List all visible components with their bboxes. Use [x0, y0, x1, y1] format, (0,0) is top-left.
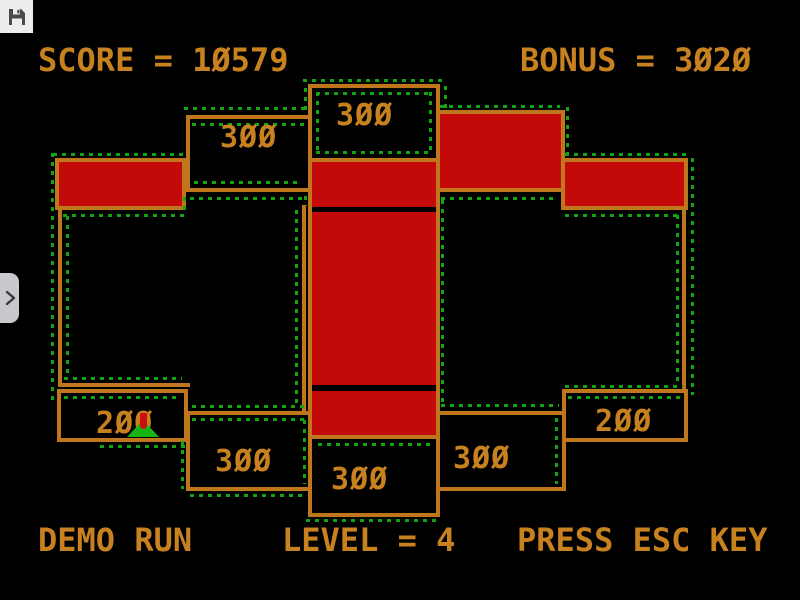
floppy-icon: [7, 7, 27, 27]
trace-dotted-line: [444, 86, 447, 112]
game-screen: SCORE = 1Ø579 BONUS = 3Ø2Ø DEMO RUN LEVE…: [0, 0, 800, 600]
level-text: LEVEL = 4: [282, 524, 455, 556]
trace-dotted-line: [183, 197, 186, 215]
trace-dotted-line: [441, 200, 444, 406]
claimed-block-left-bar: [55, 158, 186, 210]
trace-dotted-line: [63, 214, 185, 217]
region-label-top-left: 3ØØ: [220, 123, 277, 153]
trace-dotted-line: [64, 396, 180, 399]
trace-dotted-line: [66, 216, 69, 378]
trace-dotted-line: [184, 107, 310, 110]
trace-dotted-line: [192, 405, 304, 408]
claimed-block-center-3: [312, 391, 436, 435]
trace-dotted-line: [306, 519, 440, 522]
trace-dotted-line: [568, 396, 682, 399]
bonus-text: BONUS = 3Ø2Ø: [520, 44, 751, 76]
region-label-bottom-center: 3ØØ: [331, 465, 388, 495]
trace-dotted-line: [100, 445, 190, 448]
save-button[interactable]: [0, 0, 33, 33]
claimed-block-right-1: [436, 110, 565, 192]
region-border: [302, 205, 306, 415]
region-border: [58, 210, 62, 387]
trace-dotted-line: [565, 385, 683, 388]
demo-run-text: DEMO RUN: [38, 524, 192, 556]
trace-dotted-line: [192, 418, 304, 421]
sidebar-toggle-button[interactable]: [0, 273, 19, 323]
region-label-top-center: 3ØØ: [336, 101, 393, 131]
claimed-block-right-2: [561, 158, 688, 210]
trace-dotted-line: [181, 441, 184, 489]
trace-dotted-line: [676, 215, 679, 383]
chevron-right-icon: [3, 290, 17, 306]
trace-dotted-line: [303, 79, 443, 82]
trace-dotted-line: [53, 153, 186, 156]
trace-dotted-line: [64, 377, 182, 380]
trace-dotted-line: [565, 153, 690, 156]
score-text: SCORE = 1Ø579: [38, 44, 288, 76]
trace-dotted-line: [440, 105, 560, 108]
trace-dotted-line: [555, 418, 558, 484]
claimed-block-center-2: [312, 212, 436, 385]
player-sprite-drip: [140, 413, 147, 429]
region-border: [58, 383, 190, 387]
region-label-bottom-right-200: 2ØØ: [595, 407, 652, 437]
trace-dotted-line: [441, 197, 557, 200]
trace-dotted-line: [691, 158, 694, 395]
trace-dotted-line: [190, 197, 304, 200]
region-border: [312, 435, 436, 439]
press-esc-text: PRESS ESC KEY: [517, 524, 767, 556]
trace-dotted-line: [303, 420, 306, 484]
region-label-bottom-left-300: 3ØØ: [215, 447, 272, 477]
trace-dotted-line: [51, 153, 54, 400]
region-label-bottom-right-300: 3ØØ: [453, 444, 510, 474]
trace-dotted-line: [295, 210, 298, 406]
trace-dotted-line: [318, 443, 430, 446]
trace-dotted-line: [194, 181, 302, 184]
trace-dotted-line: [441, 404, 559, 407]
claimed-block-center-1: [312, 162, 436, 207]
trace-dotted-line: [190, 494, 306, 497]
trace-dotted-line: [566, 107, 569, 155]
region-border: [682, 210, 686, 390]
trace-dotted-line: [565, 214, 681, 217]
